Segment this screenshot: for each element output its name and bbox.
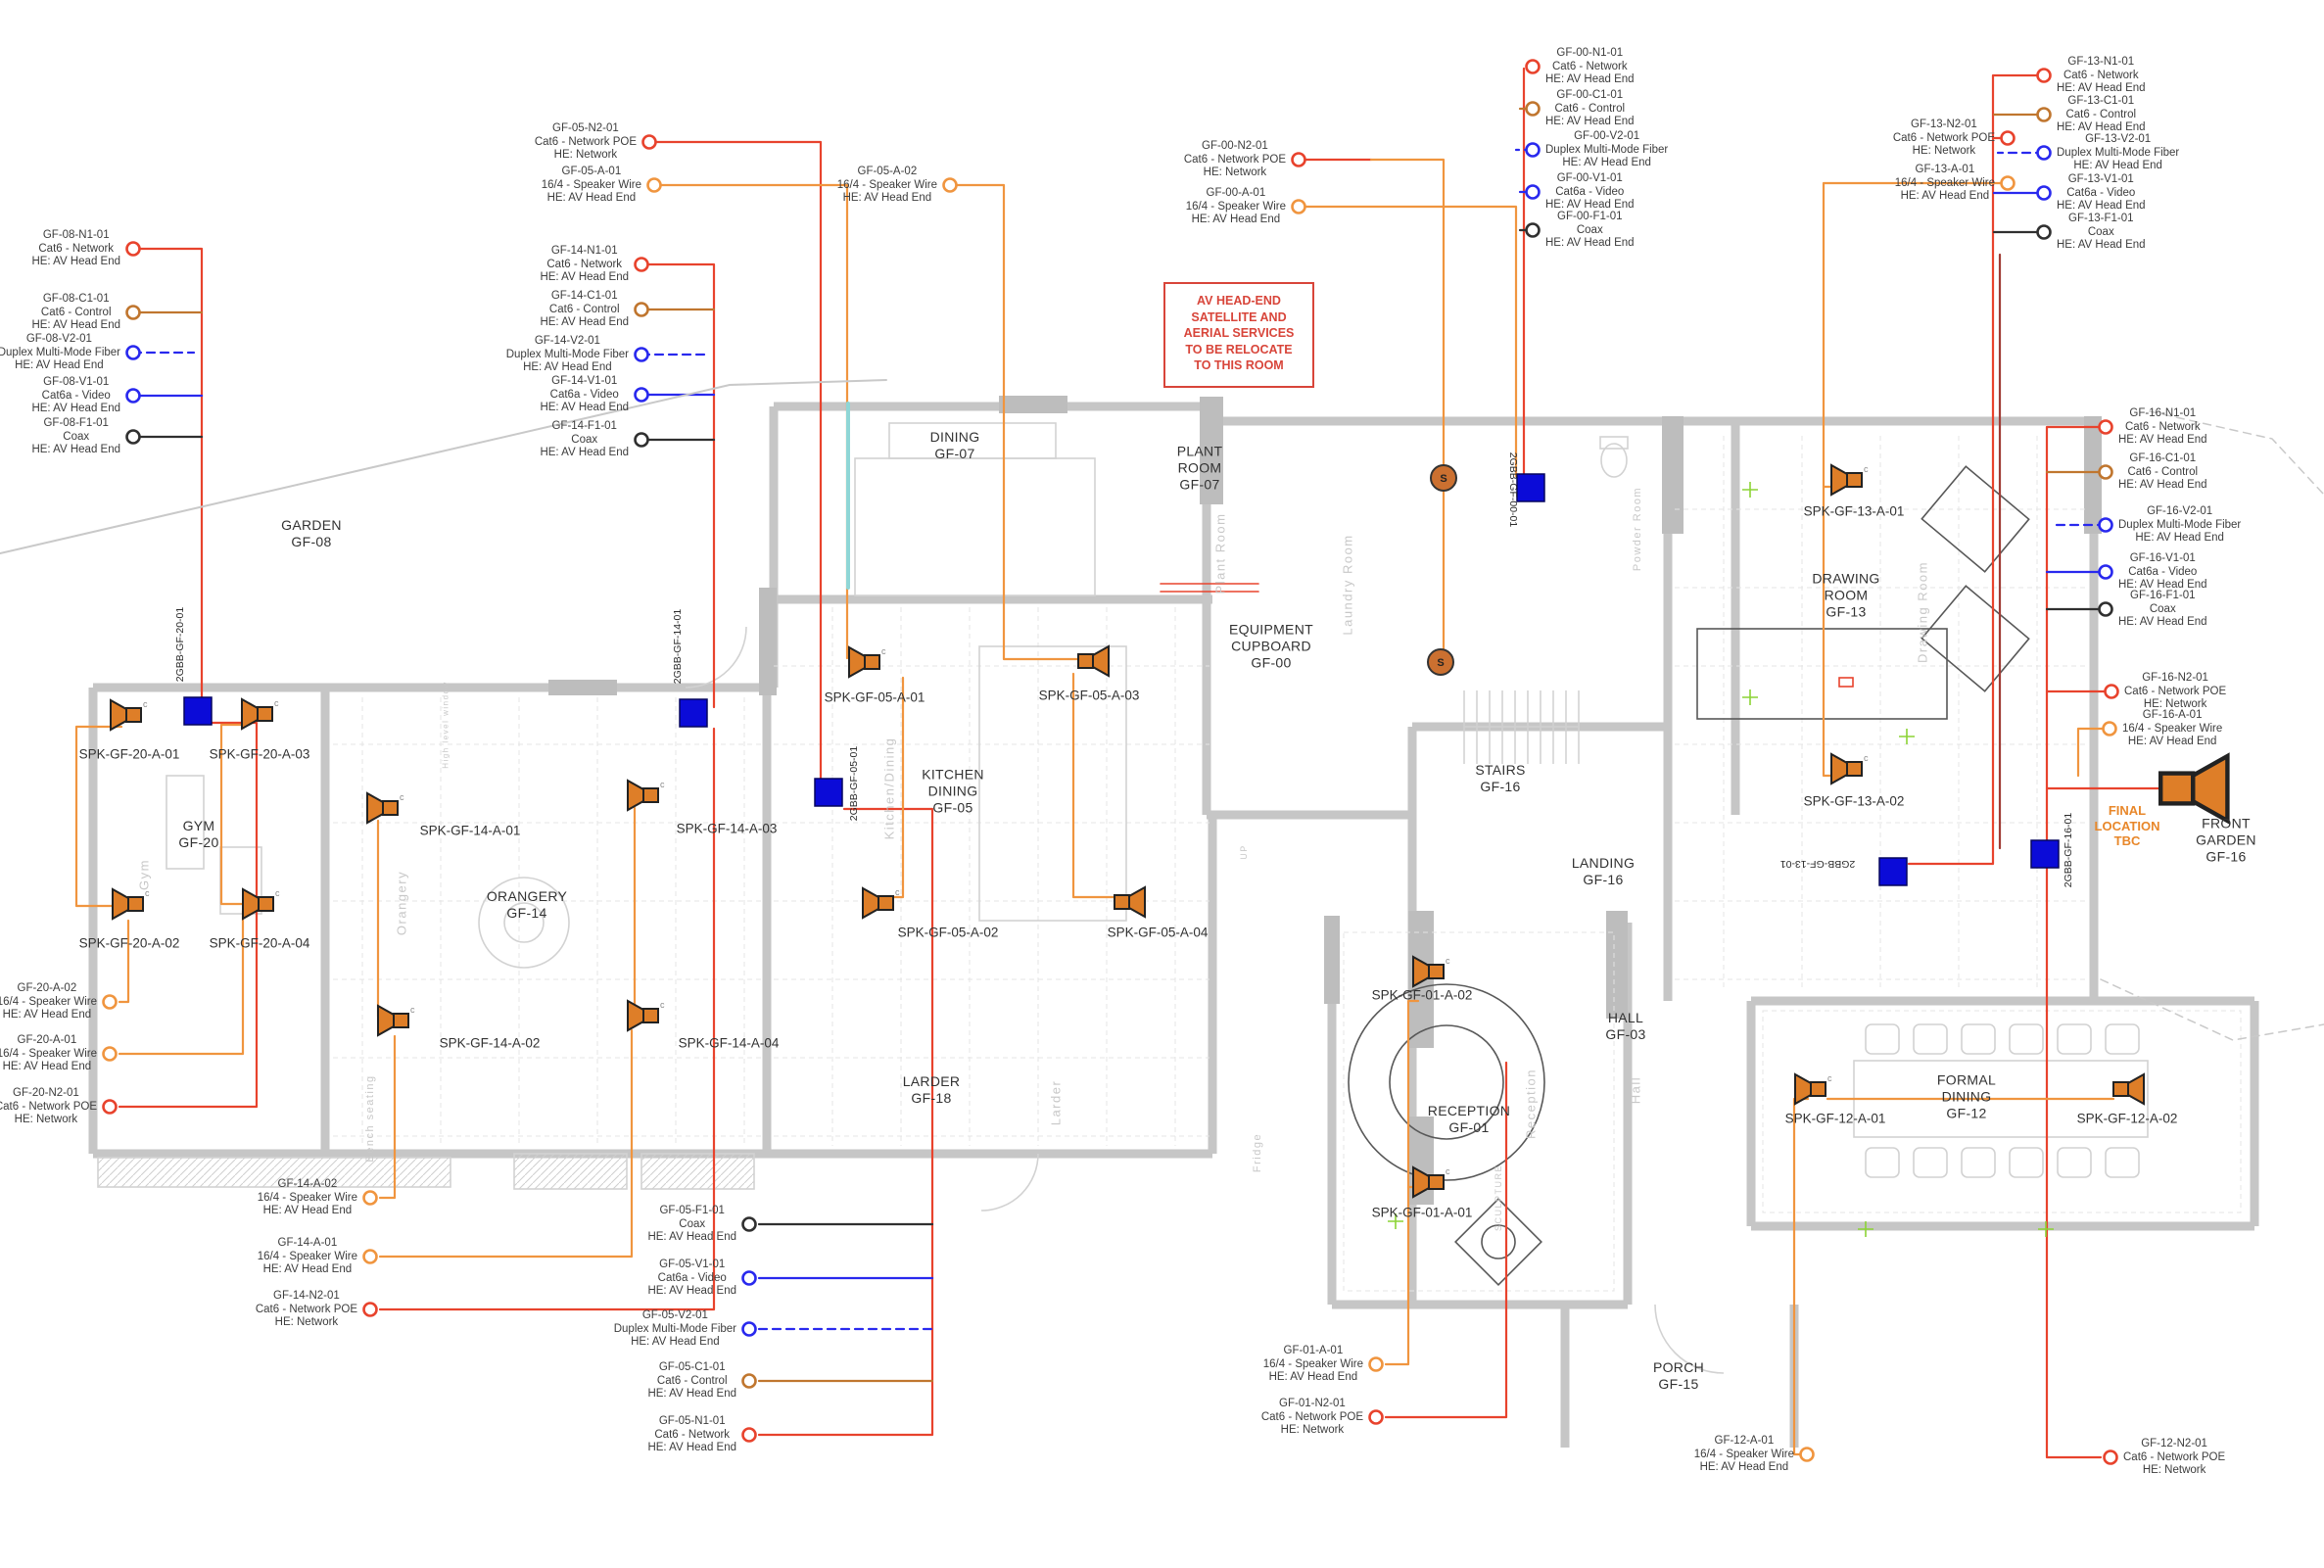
room-label-porch-gf-15: PORCHGF-15 [1653, 1359, 1704, 1393]
speaker-label-SPK-GF-05-A-02: SPK-GF-05-A-02 [898, 926, 999, 940]
arch-text-reception: Reception [1524, 1069, 1539, 1139]
speaker-label-SPK-GF-20-A-03: SPK-GF-20-A-03 [210, 747, 310, 762]
keypad-label-2GBB-GF-16-01: 2GBB-GF-16-01 [2063, 813, 2074, 887]
cable-label-GF-01-A-01: GF-01-A-0116/4 - Speaker WireHE: AV Head… [1263, 1345, 1363, 1385]
arch-text-drawing-room: Drawing Room [1916, 561, 1930, 663]
room-label-plant-room-gf-07: PLANTROOMGF-07 [1177, 444, 1223, 494]
arch-text-bench-seating: Bench seating [364, 1074, 376, 1162]
relocation-note: AV HEAD-END SATELLITE AND AERIAL SERVICE… [1163, 282, 1314, 388]
cable-label-GF-08-F1-01: GF-08-F1-01CoaxHE: AV Head End [31, 417, 120, 457]
speaker-label-SPK-GF-14-A-02: SPK-GF-14-A-02 [440, 1036, 541, 1051]
cable-label-GF-13-C1-01: GF-13-C1-01Cat6 - ControlHE: AV Head End [2057, 95, 2146, 135]
cable-label-GF-13-A-01: GF-13-A-0116/4 - Speaker WireHE: AV Head… [1895, 164, 1995, 204]
room-label-kitchen-dining-gf-05: KITCHENDININGGF-05 [922, 767, 984, 817]
speaker-label-SPK-GF-05-A-01: SPK-GF-05-A-01 [825, 690, 925, 705]
arch-text-powder-room: Powder Room [1632, 487, 1643, 571]
cable-label-GF-16-V1-01: GF-16-V1-01Cat6a - VideoHE: AV Head End [2118, 552, 2207, 593]
arch-text-fridge: Fridge [1252, 1133, 1263, 1172]
cable-label-GF-05-A-01: GF-05-A-0116/4 - Speaker WireHE: AV Head… [542, 166, 641, 206]
room-label-equipment-cupboard-gf-00: EQUIPMENTCUPBOARDGF-00 [1229, 622, 1313, 672]
speaker-label-SPK-GF-05-A-04: SPK-GF-05-A-04 [1108, 926, 1209, 940]
speaker-label-SPK-GF-12-A-01: SPK-GF-12-A-01 [1785, 1112, 1886, 1126]
speaker-label-SPK-GF-13-A-02: SPK-GF-13-A-02 [1804, 794, 1905, 809]
cable-label-GF-00-C1-01: GF-00-C1-01Cat6 - ControlHE: AV Head End [1545, 89, 1635, 129]
keypad-label-2GBB-GF-14-01: 2GBB-GF-14-01 [672, 609, 684, 684]
cable-label-GF-05-V1-01: GF-05-V1-01Cat6a - VideoHE: AV Head End [647, 1259, 736, 1299]
speaker-label-SPK-GF-14-A-01: SPK-GF-14-A-01 [420, 824, 521, 838]
keypad-label-2GBB-GF-05-01: 2GBB-GF-05-01 [848, 746, 860, 821]
speaker-label-SPK-GF-14-A-04: SPK-GF-14-A-04 [679, 1036, 780, 1051]
final-location-line: FINAL [2095, 803, 2160, 819]
speaker-label-SPK-GF-01-A-01: SPK-GF-01-A-01 [1372, 1206, 1473, 1220]
cable-label-GF-05-F1-01: GF-05-F1-01CoaxHE: AV Head End [647, 1205, 736, 1245]
cable-label-GF-14-V2-01: GF-14-V2-01Duplex Multi-Mode FiberHE: AV… [506, 335, 629, 375]
cable-label-GF-08-V2-01: GF-08-V2-01Duplex Multi-Mode FiberHE: AV… [0, 333, 120, 373]
cable-label-GF-16-F1-01: GF-16-F1-01CoaxHE: AV Head End [2118, 590, 2207, 630]
cable-label-GF-08-V1-01: GF-08-V1-01Cat6a - VideoHE: AV Head End [31, 376, 120, 416]
speaker-label-SPK-GF-20-A-04: SPK-GF-20-A-04 [210, 936, 310, 951]
room-label-landing-gf-16: LANDINGGF-16 [1572, 855, 1635, 888]
cable-label-GF-00-N2-01: GF-00-N2-01Cat6 - Network POEHE: Network [1184, 140, 1286, 180]
cable-label-GF-14-N2-01: GF-14-N2-01Cat6 - Network POEHE: Network [256, 1290, 357, 1330]
keypad-label-2GBB-GF-13-01: 2GBB-GF-13-01 [1780, 858, 1855, 870]
arch-text-gym: Gym [137, 859, 152, 890]
room-label-front-garden-gf-16: FRONTGARDENGF-16 [2196, 816, 2256, 866]
room-label-drawing-room-gf-13: DRAWINGROOMGF-13 [1812, 571, 1879, 621]
cable-label-GF-13-V1-01: GF-13-V1-01Cat6a - VideoHE: AV Head End [2057, 173, 2146, 214]
arch-text-kitchen-dining: Kitchen/Dining [882, 737, 897, 840]
arch-text-plant-room: Plant Room [1213, 513, 1228, 594]
cable-label-GF-00-V2-01: GF-00-V2-01Duplex Multi-Mode FiberHE: AV… [1545, 130, 1668, 170]
speaker-label-SPK-GF-05-A-03: SPK-GF-05-A-03 [1039, 689, 1140, 703]
cable-label-GF-05-C1-01: GF-05-C1-01Cat6 - ControlHE: AV Head End [647, 1361, 736, 1402]
cable-label-GF-00-N1-01: GF-00-N1-01Cat6 - NetworkHE: AV Head End [1545, 47, 1635, 87]
cable-label-GF-14-F1-01: GF-14-F1-01CoaxHE: AV Head End [540, 420, 629, 460]
cable-label-GF-13-V2-01: GF-13-V2-01Duplex Multi-Mode FiberHE: AV… [2057, 133, 2179, 173]
cable-label-GF-05-N2-01: GF-05-N2-01Cat6 - Network POEHE: Network [535, 122, 637, 163]
room-label-gym-gf-20: GYMGF-20 [178, 818, 218, 851]
arch-text-high-level-window: High level window [442, 681, 451, 769]
cable-label-GF-20-N2-01: GF-20-N2-01Cat6 - Network POEHE: Network [0, 1087, 97, 1127]
cable-label-GF-14-C1-01: GF-14-C1-01Cat6 - ControlHE: AV Head End [540, 290, 629, 330]
cable-label-GF-13-N2-01: GF-13-N2-01Cat6 - Network POEHE: Network [1893, 119, 1995, 159]
arch-text-up: UP [1239, 844, 1249, 860]
final-location-line: TBC [2095, 833, 2160, 849]
speaker-label-SPK-GF-01-A-02: SPK-GF-01-A-02 [1372, 988, 1473, 1003]
relocation-note-line: TO BE RELOCATE [1165, 342, 1312, 358]
room-label-garden-gf-08: GARDENGF-08 [281, 517, 342, 550]
cable-label-GF-12-N2-01: GF-12-N2-01Cat6 - Network POEHE: Network [2123, 1438, 2225, 1478]
relocation-note-line: AERIAL SERVICES [1165, 325, 1312, 342]
room-label-hall-gf-03: HALLGF-03 [1605, 1010, 1645, 1043]
cable-label-GF-00-A-01: GF-00-A-0116/4 - Speaker WireHE: AV Head… [1186, 187, 1286, 227]
final-location-line: LOCATION [2095, 818, 2160, 833]
cable-label-GF-16-N1-01: GF-16-N1-01Cat6 - NetworkHE: AV Head End [2118, 407, 2207, 448]
final-location-note: FINAL LOCATION TBC [2095, 803, 2160, 849]
cable-label-GF-13-N1-01: GF-13-N1-01Cat6 - NetworkHE: AV Head End [2057, 56, 2146, 96]
cable-label-GF-16-A-01: GF-16-A-0116/4 - Speaker WireHE: AV Head… [2122, 709, 2222, 749]
speaker-label-SPK-GF-20-A-02: SPK-GF-20-A-02 [79, 936, 180, 951]
cable-label-GF-14-V1-01: GF-14-V1-01Cat6a - VideoHE: AV Head End [540, 375, 629, 415]
room-label-larder-gf-18: LARDERGF-18 [903, 1073, 961, 1107]
relocation-note-line: AV HEAD-END [1165, 293, 1312, 309]
cable-label-GF-00-F1-01: GF-00-F1-01CoaxHE: AV Head End [1545, 211, 1635, 251]
speaker-label-SPK-GF-14-A-03: SPK-GF-14-A-03 [677, 822, 778, 836]
cable-label-GF-14-N1-01: GF-14-N1-01Cat6 - NetworkHE: AV Head End [540, 245, 629, 285]
cable-label-GF-01-N2-01: GF-01-N2-01Cat6 - Network POEHE: Network [1261, 1398, 1363, 1438]
arch-text-sculpture: SCULPTURE [1494, 1164, 1503, 1231]
room-label-orangery-gf-14: ORANGERYGF-14 [487, 888, 567, 922]
cable-label-GF-14-A-02: GF-14-A-0216/4 - Speaker WireHE: AV Head… [258, 1178, 357, 1218]
cable-label-GF-05-A-02: GF-05-A-0216/4 - Speaker WireHE: AV Head… [837, 166, 937, 206]
arch-text-orangery: Orangery [395, 871, 409, 935]
cable-label-GF-05-N1-01: GF-05-N1-01Cat6 - NetworkHE: AV Head End [647, 1415, 736, 1455]
speaker-label-SPK-GF-12-A-02: SPK-GF-12-A-02 [2077, 1112, 2178, 1126]
keypad-label-2GBB-GF-20-01: 2GBB-GF-20-01 [174, 607, 186, 682]
speaker-label-SPK-GF-13-A-01: SPK-GF-13-A-01 [1804, 504, 1905, 519]
cable-label-GF-14-A-01: GF-14-A-0116/4 - Speaker WireHE: AV Head… [258, 1237, 357, 1277]
cable-label-GF-20-A-02: GF-20-A-0216/4 - Speaker WireHE: AV Head… [0, 982, 97, 1022]
text-labels-layer: GF-08-N1-01Cat6 - NetworkHE: AV Head End… [0, 0, 2324, 1568]
cable-label-GF-00-V1-01: GF-00-V1-01Cat6a - VideoHE: AV Head End [1545, 172, 1635, 213]
cable-label-GF-12-A-01: GF-12-A-0116/4 - Speaker WireHE: AV Head… [1694, 1435, 1794, 1475]
arch-text-larder: Larder [1049, 1080, 1064, 1126]
room-label-reception-gf-01: RECEPTIONGF-01 [1428, 1103, 1510, 1136]
relocation-note-line: TO THIS ROOM [1165, 357, 1312, 374]
cable-label-GF-08-N1-01: GF-08-N1-01Cat6 - NetworkHE: AV Head End [31, 229, 120, 269]
cable-label-GF-20-A-01: GF-20-A-0116/4 - Speaker WireHE: AV Head… [0, 1034, 97, 1074]
cable-label-GF-05-V2-01: GF-05-V2-01Duplex Multi-Mode FiberHE: AV… [614, 1309, 736, 1350]
cable-label-GF-16-N2-01: GF-16-N2-01Cat6 - Network POEHE: Network [2124, 672, 2226, 712]
cable-label-GF-16-V2-01: GF-16-V2-01Duplex Multi-Mode FiberHE: AV… [2118, 505, 2241, 546]
room-label-stairs-gf-16: STAIRSGF-16 [1475, 762, 1525, 795]
cable-label-GF-16-C1-01: GF-16-C1-01Cat6 - ControlHE: AV Head End [2118, 452, 2207, 493]
arch-text-hall: Hall [1629, 1076, 1643, 1104]
relocation-note-line: SATELLITE AND [1165, 309, 1312, 326]
room-label-formal-dining-gf-12: FORMALDININGGF-12 [1937, 1072, 1996, 1122]
cable-label-GF-13-F1-01: GF-13-F1-01CoaxHE: AV Head End [2057, 213, 2146, 253]
room-label-dining-gf-07: DININGGF-07 [930, 429, 980, 462]
arch-text-laundry-room: Laundry Room [1341, 534, 1355, 635]
keypad-label-2GBB-GF-00-01: 2GBB-GF-00-01 [1507, 452, 1519, 527]
speaker-label-SPK-GF-20-A-01: SPK-GF-20-A-01 [79, 747, 180, 762]
cable-label-GF-08-C1-01: GF-08-C1-01Cat6 - ControlHE: AV Head End [31, 293, 120, 333]
floor-plan-page: cccccccccccccccSS GF-08-N1-01Cat6 - Netw… [0, 0, 2324, 1568]
